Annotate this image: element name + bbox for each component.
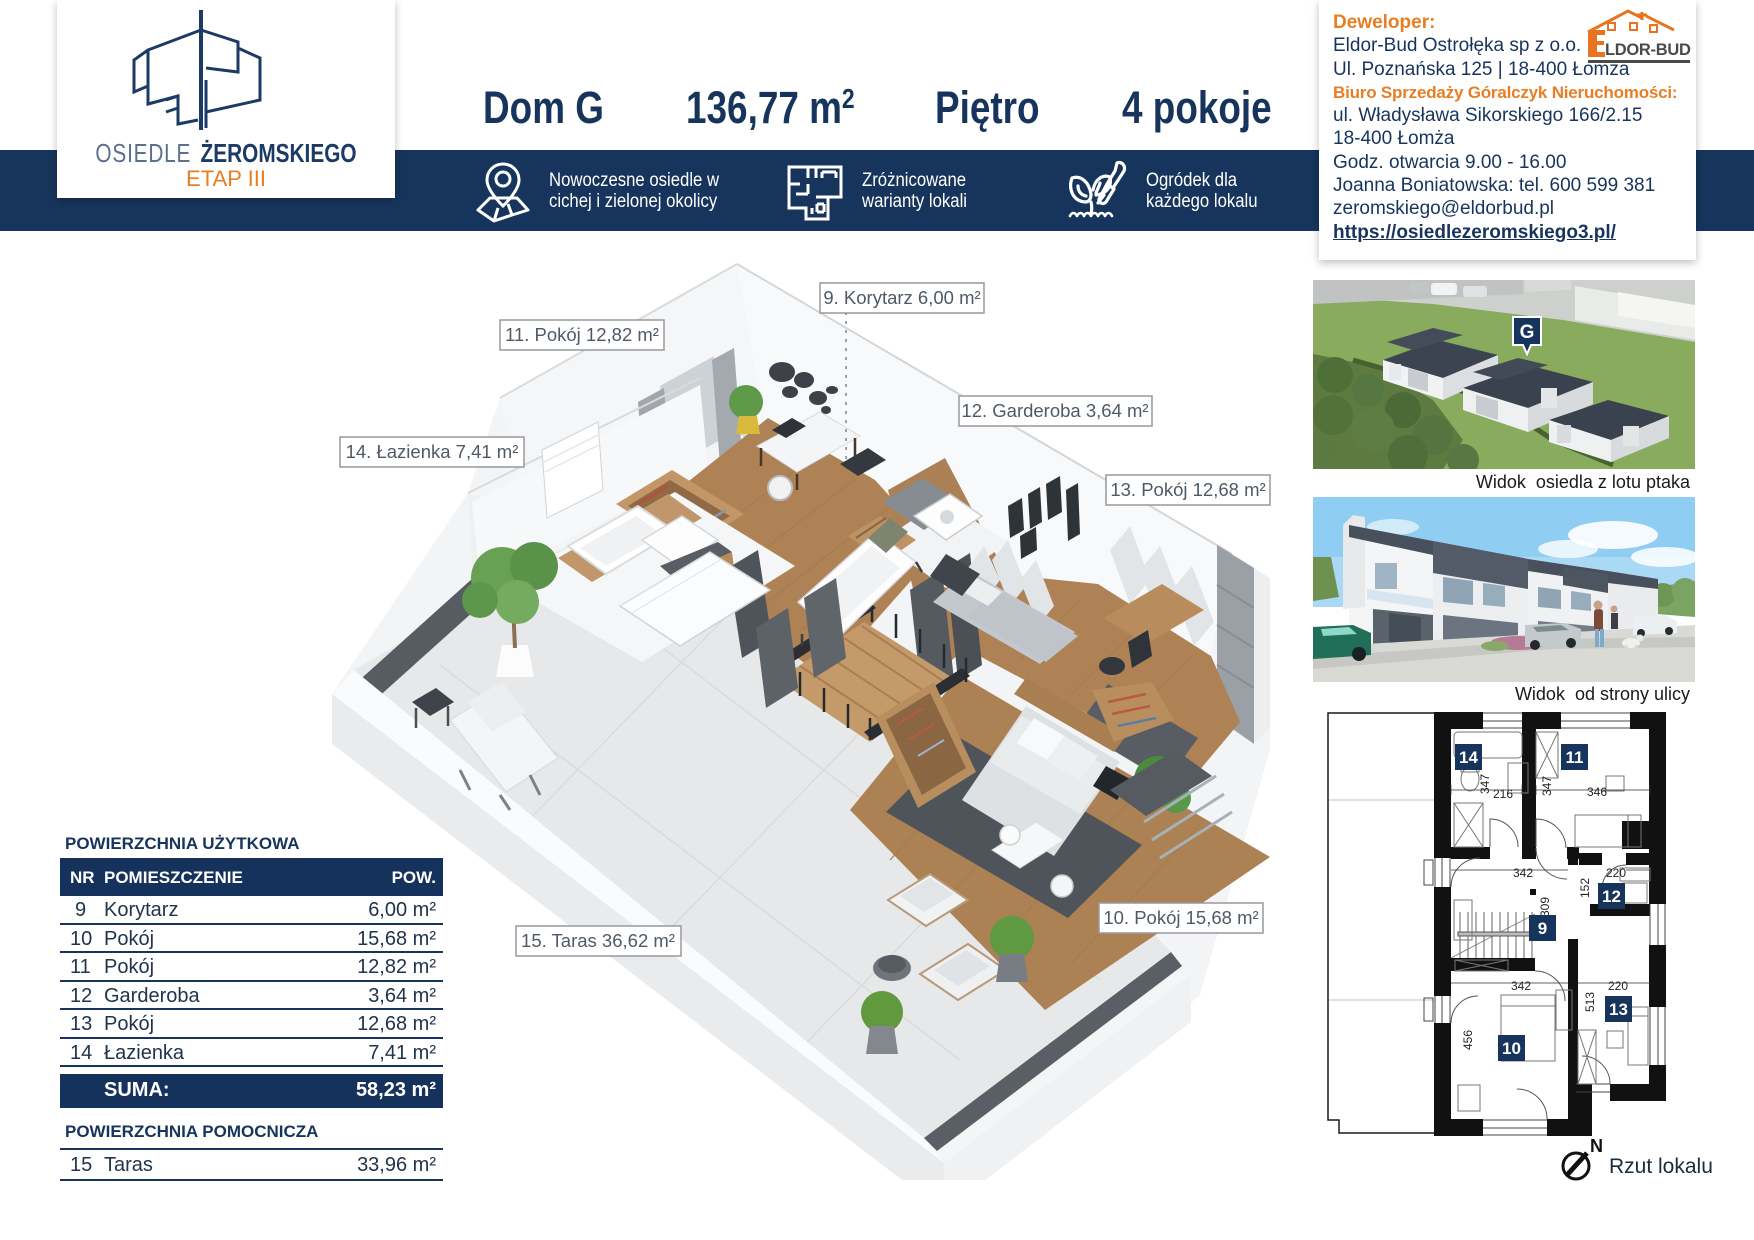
svg-text:152: 152 [1578,878,1592,898]
svg-text:309: 309 [1538,897,1552,917]
svg-text:456: 456 [1461,1030,1475,1050]
svg-text:346: 346 [1587,785,1607,799]
svg-text:220: 220 [1608,979,1628,993]
svg-text:12. Garderoba 3,64 m²: 12. Garderoba 3,64 m² [961,400,1148,421]
svg-text:13: 13 [1609,1000,1628,1019]
svg-text:G: G [1520,322,1535,343]
svg-text:15. Taras 36,62 m²: 15. Taras 36,62 m² [521,930,675,951]
svg-text:220: 220 [1606,866,1626,880]
svg-text:14: 14 [1459,748,1478,767]
svg-text:Rzut lokalu: Rzut lokalu [1609,1155,1713,1178]
svg-text:342: 342 [1511,979,1531,993]
svg-text:9. Korytarz 6,00 m²: 9. Korytarz 6,00 m² [823,287,980,308]
svg-text:347: 347 [1540,776,1554,796]
svg-text:10. Pokój 15,68 m²: 10. Pokój 15,68 m² [1103,907,1258,928]
svg-text:N: N [1590,1136,1603,1156]
svg-text:13. Pokój 12,68 m²: 13. Pokój 12,68 m² [1110,479,1265,500]
svg-text:9: 9 [1538,919,1547,938]
svg-text:LDOR-BUD: LDOR-BUD [1605,41,1691,59]
svg-text:513: 513 [1583,992,1597,1012]
svg-text:14. Łazienka 7,41 m²: 14. Łazienka 7,41 m² [346,441,519,462]
svg-text:10: 10 [1502,1039,1521,1058]
svg-text:216: 216 [1493,787,1513,801]
svg-text:347: 347 [1478,774,1492,794]
svg-text:342: 342 [1513,866,1533,880]
svg-text:11: 11 [1566,748,1584,767]
svg-text:12: 12 [1602,887,1621,906]
svg-text:11. Pokój 12,82 m²: 11. Pokój 12,82 m² [505,324,659,345]
